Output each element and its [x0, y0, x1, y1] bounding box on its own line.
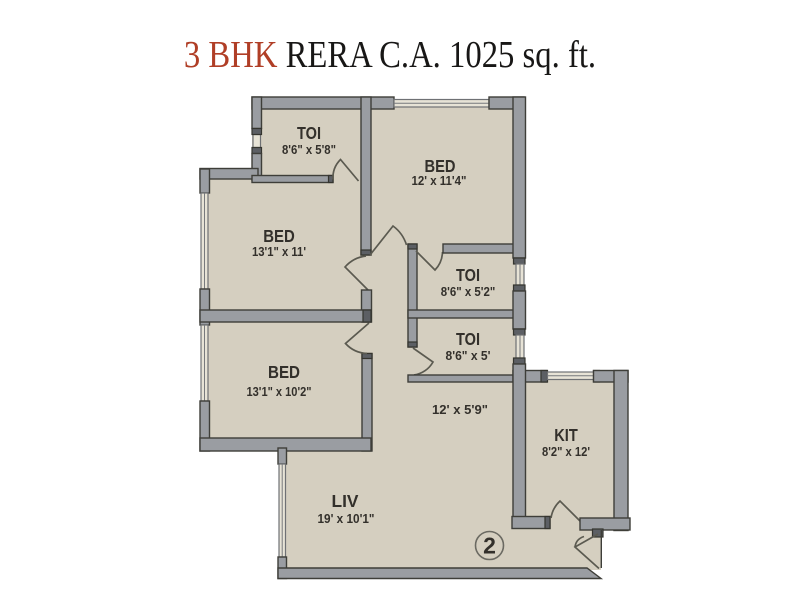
svg-text:8'6" x 5': 8'6" x 5': [446, 348, 491, 363]
svg-text:TOI: TOI: [456, 265, 480, 285]
svg-text:KIT: KIT: [554, 425, 578, 445]
svg-text:12' x 11'4": 12' x 11'4": [412, 173, 467, 188]
svg-text:13'1" x 11': 13'1" x 11': [252, 244, 306, 259]
svg-text:TOI: TOI: [297, 123, 321, 143]
svg-text:BED: BED: [263, 226, 295, 246]
svg-text:12' x 5'9": 12' x 5'9": [432, 402, 488, 417]
svg-text:8'6" x 5'8": 8'6" x 5'8": [282, 142, 336, 157]
svg-text:8'2" x 12': 8'2" x 12': [542, 444, 590, 459]
svg-text:13'1" x 10'2": 13'1" x 10'2": [247, 384, 312, 399]
svg-text:19' x 10'1": 19' x 10'1": [318, 511, 375, 526]
svg-text:8'6" x 5'2": 8'6" x 5'2": [441, 284, 496, 299]
svg-text:2: 2: [483, 533, 496, 559]
svg-text:LIV: LIV: [332, 491, 359, 511]
svg-text:BED: BED: [268, 362, 300, 382]
svg-text:TOI: TOI: [456, 329, 480, 349]
